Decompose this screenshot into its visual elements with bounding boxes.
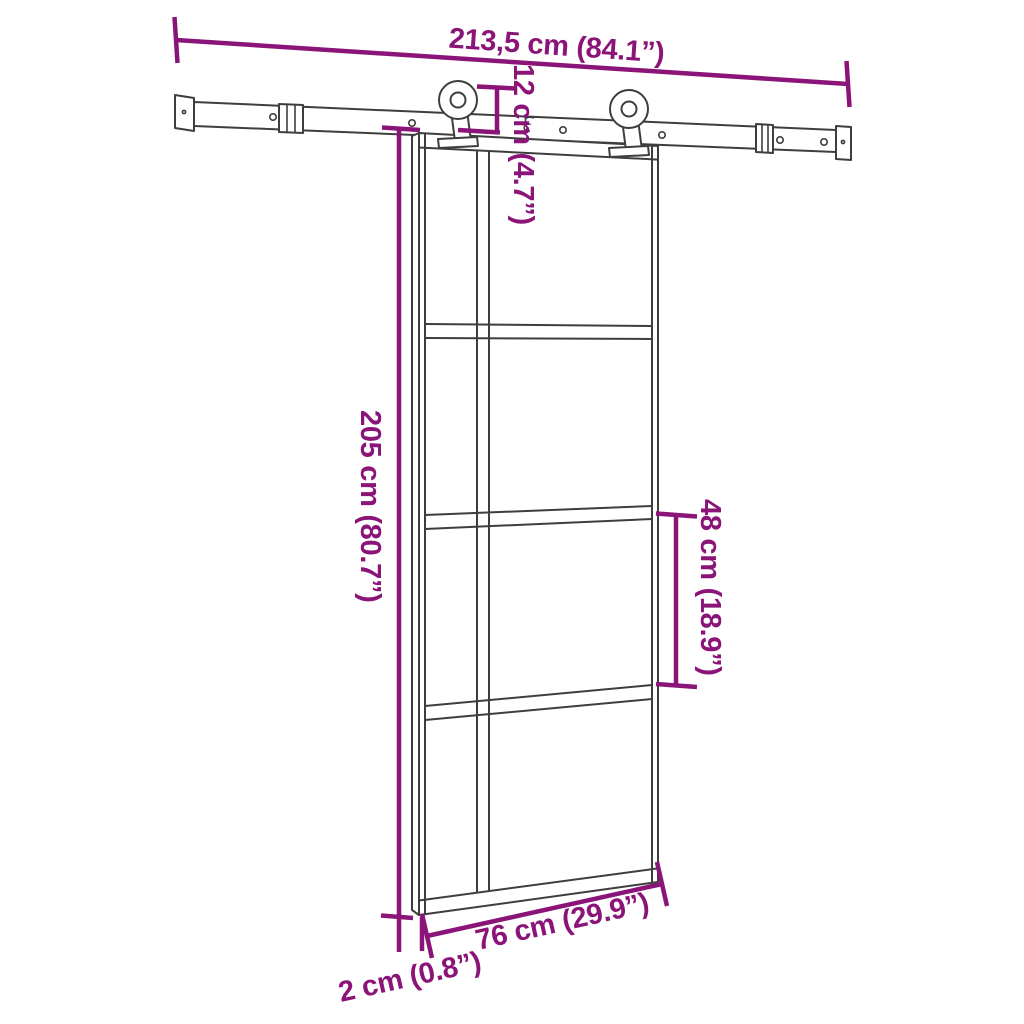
rail-connector-right: [756, 124, 773, 153]
dimension-label-door-thickness: 2 cm (0.8”): [336, 946, 484, 1009]
roller-left-foot: [438, 137, 478, 148]
rail-connector-left: [279, 104, 303, 133]
dimension-cap-bottom: [458, 130, 500, 133]
dimension-cap-bottom: [381, 916, 413, 919]
roller-right-foot: [609, 146, 649, 157]
door: [412, 133, 658, 915]
roller-left-wheel: [439, 81, 477, 119]
dimension-label-panel-height: 48 cm (18.9”): [694, 499, 726, 676]
dimension-panel-height: 48 cm (18.9”): [656, 499, 726, 687]
dimension-cap-right: [847, 61, 850, 107]
dimension-label-rail-width: 213,5 cm (84.1”): [448, 23, 666, 70]
sliding-door-diagram: 213,5 cm (84.1”) 12 cm (4.7”) 205 cm (80…: [0, 0, 1024, 1024]
diagram-canvas: 213,5 cm (84.1”) 12 cm (4.7”) 205 cm (80…: [0, 0, 1024, 1024]
dimension-cap-top: [656, 514, 697, 517]
dimension-cap-top: [382, 128, 420, 131]
dimension-door-thickness: 2 cm (0.8”): [336, 917, 484, 1009]
roller-right-wheel: [610, 90, 648, 128]
dimension-label-hanger-drop: 12 cm (4.7”): [507, 64, 539, 225]
dimension-label-door-height: 205 cm (80.7”): [354, 410, 386, 602]
dimension-door-height: 205 cm (80.7”): [354, 128, 420, 953]
dimension-cap-left: [175, 17, 178, 63]
door-left-face: [412, 133, 419, 915]
dimension-cap-bottom: [656, 684, 697, 687]
